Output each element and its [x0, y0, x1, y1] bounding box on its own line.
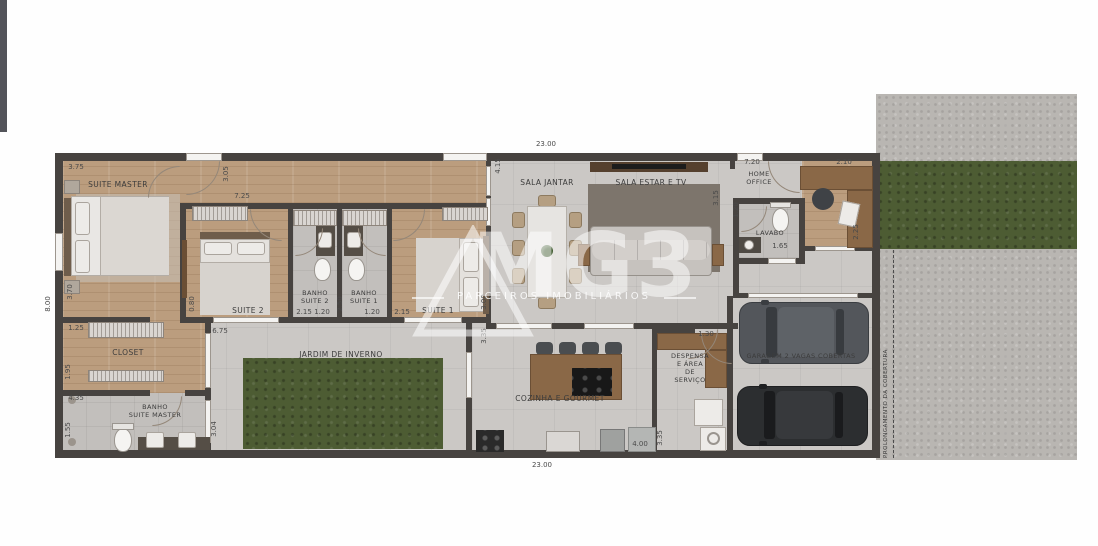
- roof-projection-line: [893, 250, 895, 458]
- washer: [694, 399, 723, 426]
- sink: [178, 432, 196, 448]
- bed-duvet: [100, 197, 169, 275]
- dim-closet-d: 1.95: [64, 358, 72, 386]
- window-sala-bottom-2: [584, 323, 634, 329]
- dim-banho-master-r: 3.04: [210, 415, 218, 443]
- winter-garden-grass: [243, 358, 443, 449]
- sofa-cushions: [592, 240, 710, 260]
- pillow: [75, 202, 90, 235]
- dim-banho2-w: 1.20: [308, 308, 336, 316]
- bed-headboard: [64, 198, 71, 276]
- wall-outer-bottom: [55, 450, 880, 458]
- window-jardim-left: [205, 333, 211, 388]
- wall-lavabo-right: [799, 198, 805, 264]
- dim-banho-master-d: 1.55: [64, 416, 72, 444]
- side-table: [578, 244, 590, 266]
- plant: [541, 245, 553, 257]
- wardrobe: [88, 322, 164, 338]
- wall-cozinha-left-b: [466, 398, 472, 451]
- pillow: [204, 242, 232, 255]
- window-lavabo-bottom: [768, 258, 796, 264]
- dim-banho1-w: 1.20: [358, 308, 386, 316]
- dim-closet-w: 1.25: [62, 324, 90, 332]
- car-rear-window: [836, 309, 844, 355]
- dim-cozinha-d: 3.35: [656, 424, 664, 452]
- window-suite-master-left: [55, 233, 63, 271]
- watermark-line-left: [412, 297, 444, 299]
- dim-suites-span: 6.75: [206, 327, 234, 335]
- roof-projection-note: PROLONGAMENTO DA COBERTURA: [883, 300, 889, 458]
- window-sala-bottom-1: [496, 323, 552, 329]
- dim-cozinha-w: 4.00: [626, 440, 654, 448]
- wall-suite1-left: [387, 209, 392, 319]
- sink: [744, 240, 754, 250]
- dining-chair: [538, 297, 556, 309]
- dining-chair: [512, 240, 525, 256]
- watermark-line-right: [664, 297, 696, 299]
- shower-box: [293, 210, 337, 226]
- cooktop: [572, 368, 612, 396]
- stove: [476, 430, 504, 452]
- wardrobe: [192, 206, 248, 221]
- dim-lavabo-w: 1.65: [766, 242, 794, 250]
- pillow: [75, 240, 90, 273]
- toilet: [348, 258, 365, 281]
- wall-cozinha-left-a: [466, 323, 472, 352]
- dim-hall-len: 7.25: [228, 192, 256, 200]
- toilet: [314, 258, 331, 281]
- label-sala-estar: SALA ESTAR E TV: [604, 178, 698, 187]
- label-closet: CLOSET: [98, 348, 158, 357]
- floor-plan-canvas: PROLONGAMENTO DA COBERTURA: [0, 0, 1098, 546]
- dim-top-width: 23.00: [532, 140, 560, 148]
- sink: [146, 432, 164, 448]
- fridge: [600, 429, 625, 452]
- dim-lavabo-d: 1.20: [732, 196, 740, 224]
- car-mirror: [761, 300, 769, 305]
- edge-sliver: [0, 0, 7, 132]
- wall-outer-right: [872, 153, 880, 458]
- tv: [612, 164, 686, 169]
- dim-banho-master-w: 4.35: [62, 394, 90, 402]
- label-garagem: GARAGEM 2 VAGAS COBERTAS: [740, 352, 862, 360]
- dining-chair: [569, 268, 582, 284]
- window-garage-top: [748, 293, 858, 298]
- car-mirror: [759, 441, 767, 446]
- label-cozinha: COZINHA E GOURMET: [502, 394, 618, 403]
- pillow: [237, 242, 265, 255]
- shower-box: [342, 210, 387, 226]
- window-suite1-jardim: [404, 317, 462, 323]
- sliding-door-panel: [182, 240, 187, 298]
- wall-office-stub: [730, 153, 735, 169]
- car-roof: [778, 307, 834, 357]
- wall-outer-left: [55, 153, 63, 458]
- label-jardim: JARDIM DE INVERNO: [286, 350, 396, 359]
- dim-suite-master-d: 3.70: [66, 278, 74, 306]
- wardrobe: [88, 370, 164, 382]
- wall-garage-left: [727, 296, 733, 451]
- label-suite-2: SUITE 2: [218, 306, 278, 315]
- label-despensa: DESPENSA E ÁREA DE SERVIÇO: [661, 352, 719, 385]
- label-banho-suite-2: BANHO SUITE 2: [295, 289, 335, 305]
- car-mirror: [759, 384, 767, 389]
- office-chair: [812, 188, 834, 210]
- wardrobe: [442, 207, 488, 221]
- label-suite-1: SUITE 1: [408, 306, 468, 315]
- lawn-right: [867, 161, 1077, 249]
- dim-suite2-off: 0.80: [188, 290, 196, 318]
- car: [737, 386, 866, 444]
- washing-machine-drum: [707, 432, 720, 445]
- dim-sala-jantar-d: 4.15: [494, 152, 502, 180]
- kitchen-sink: [546, 431, 580, 452]
- label-banho-suite-master: BANHO SUITE MASTER: [118, 403, 192, 419]
- label-suite-master: SUITE MASTER: [78, 180, 158, 189]
- wall-hall-stub: [733, 264, 739, 296]
- label-banho-suite-1: BANHO SUITE 1: [344, 289, 384, 305]
- dim-hall-door: 3.05: [222, 160, 230, 188]
- bed-headboard: [200, 232, 270, 239]
- dim-left-height: 8.00: [44, 290, 52, 318]
- bed-duvet: [416, 238, 460, 312]
- pillow: [463, 242, 479, 272]
- dim-home-office-w: 2.10: [830, 158, 858, 166]
- window-cozinha-left: [466, 352, 472, 398]
- dim-sala-estar-d: 3.15: [712, 184, 720, 212]
- car-windshield: [766, 307, 777, 357]
- dining-chair: [569, 212, 582, 228]
- dim-banhos-d: 2.50: [336, 290, 344, 318]
- dim-despensa-door: 1.30: [692, 330, 720, 338]
- window-sala-left-1: [486, 166, 491, 196]
- dim-home-office-d: 2.25: [852, 218, 860, 246]
- driveway-pavement: [876, 94, 1077, 460]
- dim-suite1-d: 3.00: [480, 288, 488, 316]
- car-roof: [776, 391, 833, 439]
- dim-bottom-width: 23.00: [528, 461, 556, 469]
- car-rear-window: [835, 392, 843, 438]
- side-table: [712, 244, 724, 266]
- window-suite2-jardim: [213, 317, 279, 323]
- label-sala-jantar: SALA JANTAR: [505, 178, 589, 187]
- window-entry-top: [186, 153, 222, 161]
- label-home-office: HOME OFFICE: [736, 170, 782, 186]
- dim-suite1-w: 2.15: [388, 308, 416, 316]
- office-desk: [800, 166, 873, 190]
- car-windshield: [764, 391, 775, 439]
- toilet-tank: [112, 423, 134, 430]
- dining-chair: [512, 212, 525, 228]
- toilet: [114, 428, 132, 452]
- dim-suite-master-w: 3.75: [62, 163, 90, 171]
- wall-lavabo-top: [733, 198, 805, 204]
- pillow: [463, 277, 479, 307]
- window-top-mid: [443, 153, 487, 161]
- dim-office-hall-w: 7.20: [738, 158, 766, 166]
- dim-jardim-win: 3.35: [480, 322, 488, 350]
- label-lavabo: LAVABO: [748, 229, 792, 237]
- dining-chair: [512, 268, 525, 284]
- wall-jardim-left-b: [205, 388, 211, 400]
